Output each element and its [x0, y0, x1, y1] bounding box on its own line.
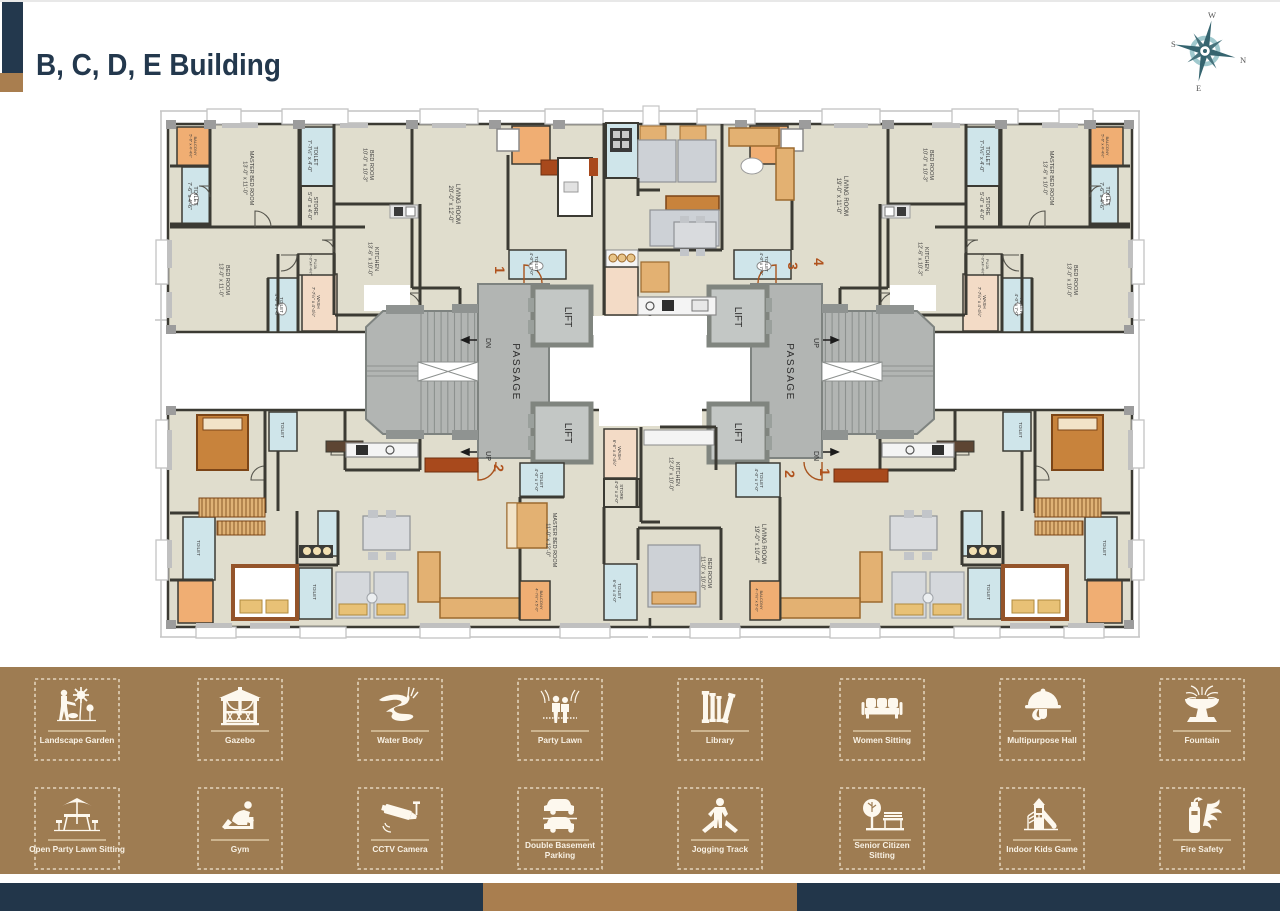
svg-text:TOILET: TOILET	[1102, 540, 1107, 556]
svg-text:LIFT: LIFT	[562, 307, 573, 328]
svg-text:LIVING ROOM19'-0" x 10'-4": LIVING ROOM19'-0" x 10'-4"	[753, 524, 766, 564]
svg-text:BED ROOM13'-0" x 11'-0": BED ROOM13'-0" x 11'-0"	[218, 263, 231, 296]
svg-text:Parking: Parking	[545, 850, 575, 860]
svg-text:DN: DN	[484, 338, 491, 348]
svg-text:TOILET: TOILET	[196, 540, 201, 556]
svg-text:BED ROOM11'-0" x 10'-0": BED ROOM11'-0" x 10'-0"	[700, 556, 713, 589]
svg-text:LIVING ROOM19'-0" x 11'-0": LIVING ROOM19'-0" x 11'-0"	[835, 176, 848, 216]
svg-text:3: 3	[785, 262, 801, 270]
svg-text:LIVING ROOM20'-0" x 12'-0": LIVING ROOM20'-0" x 12'-0"	[447, 184, 460, 224]
svg-text:BED ROOM10'-0" x 10'-3": BED ROOM10'-0" x 10'-3"	[362, 148, 375, 182]
svg-text:Multipurpose Hall: Multipurpose Hall	[1007, 735, 1077, 745]
svg-text:Sitting: Sitting	[869, 850, 895, 860]
svg-text:TOILET: TOILET	[280, 422, 285, 438]
svg-text:Library: Library	[706, 735, 735, 745]
svg-text:Jogging Track: Jogging Track	[692, 844, 749, 854]
svg-text:LIFT: LIFT	[732, 423, 743, 444]
svg-text:Fountain: Fountain	[1184, 735, 1219, 745]
svg-text:Double Basement: Double Basement	[525, 840, 595, 850]
svg-text:TOILET: TOILET	[986, 584, 991, 600]
svg-text:BED ROOM13'-0" x 10'-0": BED ROOM13'-0" x 10'-0"	[1066, 263, 1079, 297]
svg-text:Landscape Garden: Landscape Garden	[40, 735, 115, 745]
svg-text:Fire Safety: Fire Safety	[1181, 844, 1224, 854]
svg-text:BALCONY4'-7½" x 5'-0": BALCONY4'-7½" x 5'-0"	[535, 588, 545, 612]
svg-text:DN: DN	[812, 451, 819, 461]
svg-text:Women Sitting: Women Sitting	[853, 735, 911, 745]
svg-text:BED ROOM10'-0" x 10'-3": BED ROOM10'-0" x 10'-3"	[922, 148, 935, 182]
svg-text:Gym: Gym	[231, 844, 249, 854]
svg-text:PASSAGE: PASSAGE	[510, 343, 521, 401]
svg-text:Senior Citizen: Senior Citizen	[854, 840, 909, 850]
svg-text:Party Lawn: Party Lawn	[538, 735, 582, 745]
svg-text:LIFT: LIFT	[562, 423, 573, 444]
svg-text:KITCHEN13'-6" x 10'-0": KITCHEN13'-6" x 10'-0"	[367, 242, 380, 276]
svg-text:UP: UP	[484, 451, 491, 461]
svg-text:PASSAGE: PASSAGE	[784, 343, 795, 401]
svg-text:KITCHEN12'-0" x 10'-0": KITCHEN12'-0" x 10'-0"	[668, 457, 681, 491]
svg-text:TOILET: TOILET	[1018, 422, 1023, 438]
svg-text:TOILET: TOILET	[312, 584, 317, 600]
svg-text:2: 2	[782, 470, 798, 478]
svg-text:Gazebo: Gazebo	[225, 735, 255, 745]
svg-text:BALCONY5'-6" x 4'-4½": BALCONY5'-6" x 4'-4½"	[1101, 134, 1111, 158]
svg-text:UP: UP	[812, 338, 819, 348]
svg-text:Water Body: Water Body	[377, 735, 423, 745]
svg-text:4: 4	[811, 258, 827, 266]
svg-text:CCTV Camera: CCTV Camera	[372, 844, 428, 854]
svg-text:Open Party Lawn Sitting: Open Party Lawn Sitting	[29, 844, 125, 854]
svg-text:1: 1	[817, 468, 833, 476]
svg-text:Indoor Kids Game: Indoor Kids Game	[1006, 844, 1078, 854]
svg-text:BALCONY4'-7½" x 5'-0": BALCONY4'-7½" x 5'-0"	[755, 588, 765, 612]
svg-text:2: 2	[491, 464, 507, 472]
svg-text:1: 1	[492, 266, 508, 274]
svg-text:LIFT: LIFT	[732, 307, 743, 328]
svg-text:BALCONY5'-6" x 4'-4½": BALCONY5'-6" x 4'-4½"	[189, 134, 199, 158]
svg-text:KITCHEN12'-6" x 10'-3": KITCHEN12'-6" x 10'-3"	[917, 242, 930, 276]
